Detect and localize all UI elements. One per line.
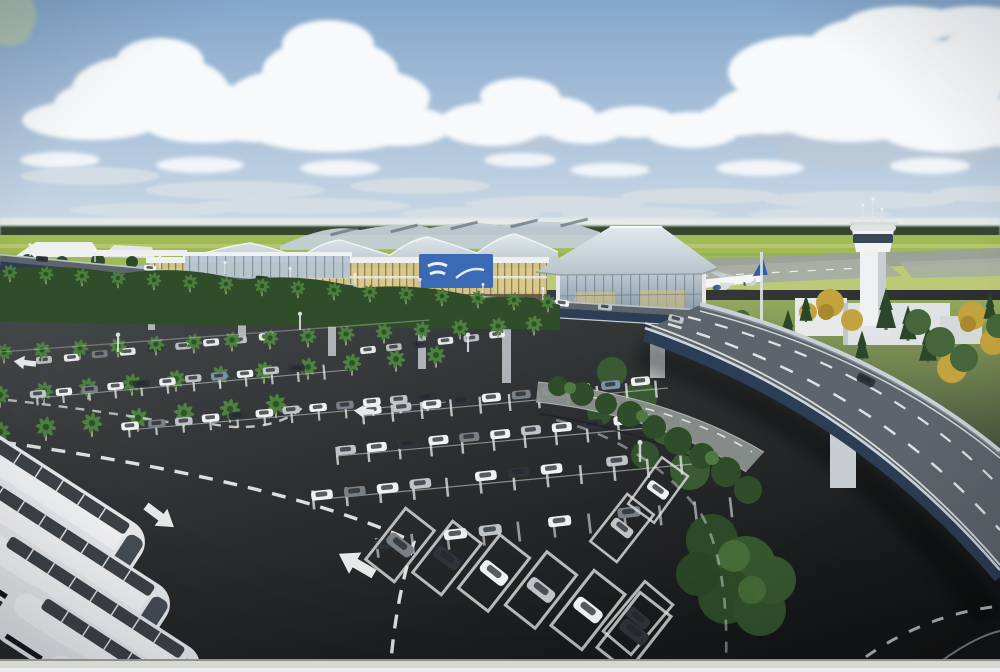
rendering-image	[0, 0, 1000, 672]
bottom-window-bar	[0, 659, 1000, 672]
vignette	[0, 0, 1000, 672]
